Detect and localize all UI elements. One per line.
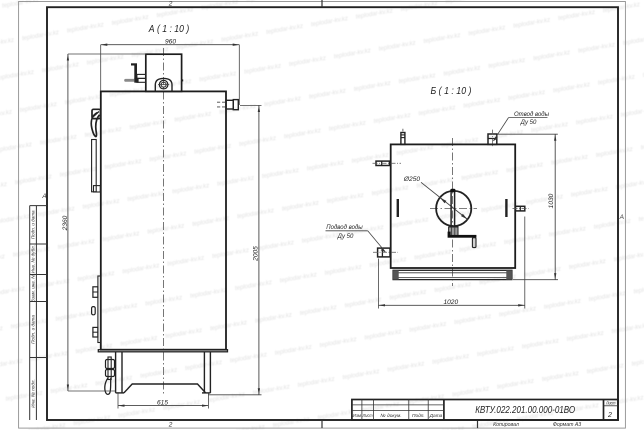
svg-text:Инв. № дубл.: Инв. № дубл. — [31, 245, 36, 273]
svg-text:КВТУ.022.201.00.000-01ВО: КВТУ.022.201.00.000-01ВО — [475, 405, 575, 416]
svg-text:2: 2 — [168, 422, 173, 429]
svg-text:Ду 50: Ду 50 — [520, 120, 537, 126]
svg-text:Подп. и дата: Подп. и дата — [31, 315, 36, 344]
svg-text:2: 2 — [168, 1, 173, 8]
svg-text:Лист: Лист — [605, 401, 615, 407]
svg-text:Подп.: Подп. — [412, 413, 425, 419]
svg-text:Б ( 1 : 10 ): Б ( 1 : 10 ) — [431, 86, 472, 97]
svg-text:2: 2 — [607, 412, 612, 419]
svg-text:Копировал: Копировал — [493, 422, 519, 428]
svg-text:Дата: Дата — [429, 413, 443, 419]
svg-text:А ( 1 : 10 ): А ( 1 : 10 ) — [148, 24, 189, 35]
svg-text:Подп. и дата: Подп. и дата — [31, 210, 36, 239]
svg-text:1030: 1030 — [548, 193, 555, 208]
svg-text:960: 960 — [165, 39, 176, 46]
svg-text:2005: 2005 — [253, 246, 260, 262]
svg-text:Взам. инв. №: Взам. инв. № — [31, 274, 36, 302]
svg-text:№ докум.: № докум. — [381, 413, 402, 419]
svg-text:615: 615 — [157, 399, 168, 406]
svg-text:А: А — [41, 193, 46, 200]
svg-text:Отвод воды: Отвод воды — [514, 112, 550, 118]
svg-text:Инв. № подл.: Инв. № подл. — [31, 379, 36, 408]
svg-text:Ду 50: Ду 50 — [337, 234, 354, 240]
svg-text:Подвод воды: Подвод воды — [326, 225, 363, 231]
svg-text:Ø250: Ø250 — [403, 176, 420, 183]
svg-text:2360: 2360 — [62, 215, 69, 231]
svg-text:Лист: Лист — [362, 413, 373, 419]
svg-text:1020: 1020 — [443, 299, 458, 306]
svg-text:Формат А3: Формат А3 — [553, 422, 581, 428]
svg-text:А: А — [619, 214, 624, 221]
svg-text:Изм: Изм — [353, 413, 362, 419]
